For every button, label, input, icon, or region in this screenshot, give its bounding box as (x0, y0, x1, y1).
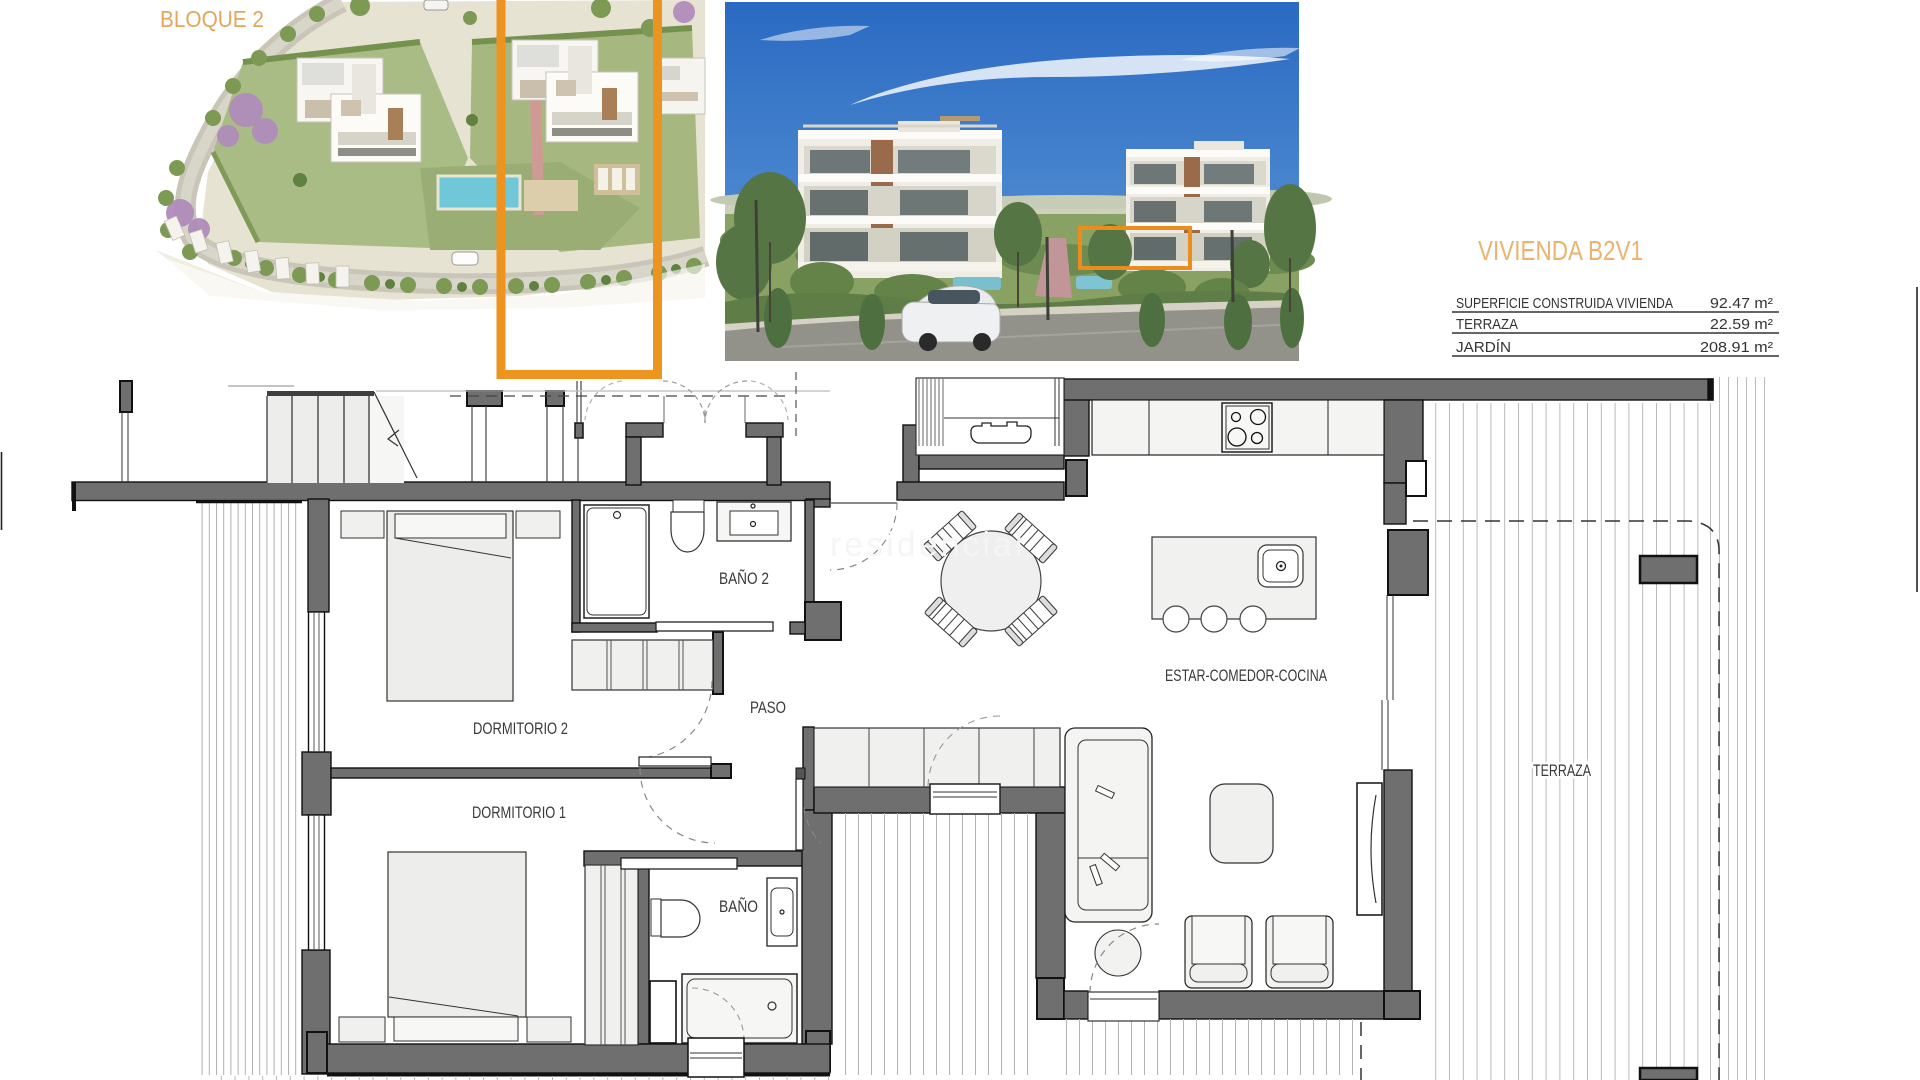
svg-text:BAÑO 2: BAÑO 2 (719, 569, 769, 588)
svg-text:TERRAZA: TERRAZA (1456, 317, 1518, 333)
svg-text:JARDÍN: JARDÍN (1456, 339, 1511, 356)
svg-text:residencial: residencial (830, 526, 1026, 564)
svg-text:ESTAR-COMEDOR-COCINA: ESTAR-COMEDOR-COCINA (1165, 666, 1327, 685)
svg-text:92.47 m²: 92.47 m² (1710, 296, 1773, 312)
svg-text:VIVIENDA B2V1: VIVIENDA B2V1 (1478, 235, 1643, 266)
svg-text:208.91 m²: 208.91 m² (1700, 340, 1773, 356)
svg-text:BLOQUE 2: BLOQUE 2 (160, 6, 264, 32)
svg-text:SUPERFICIE CONSTRUIDA VIVIENDA: SUPERFICIE CONSTRUIDA VIVIENDA (1456, 296, 1673, 312)
svg-text:TERRAZA: TERRAZA (1533, 761, 1591, 780)
svg-text:BAÑO: BAÑO (719, 897, 758, 916)
svg-text:DORMITORIO 2: DORMITORIO 2 (473, 719, 568, 738)
svg-text:DORMITORIO 1: DORMITORIO 1 (472, 803, 566, 822)
svg-text:22.59 m²: 22.59 m² (1710, 317, 1773, 333)
svg-text:PASO: PASO (750, 698, 786, 717)
